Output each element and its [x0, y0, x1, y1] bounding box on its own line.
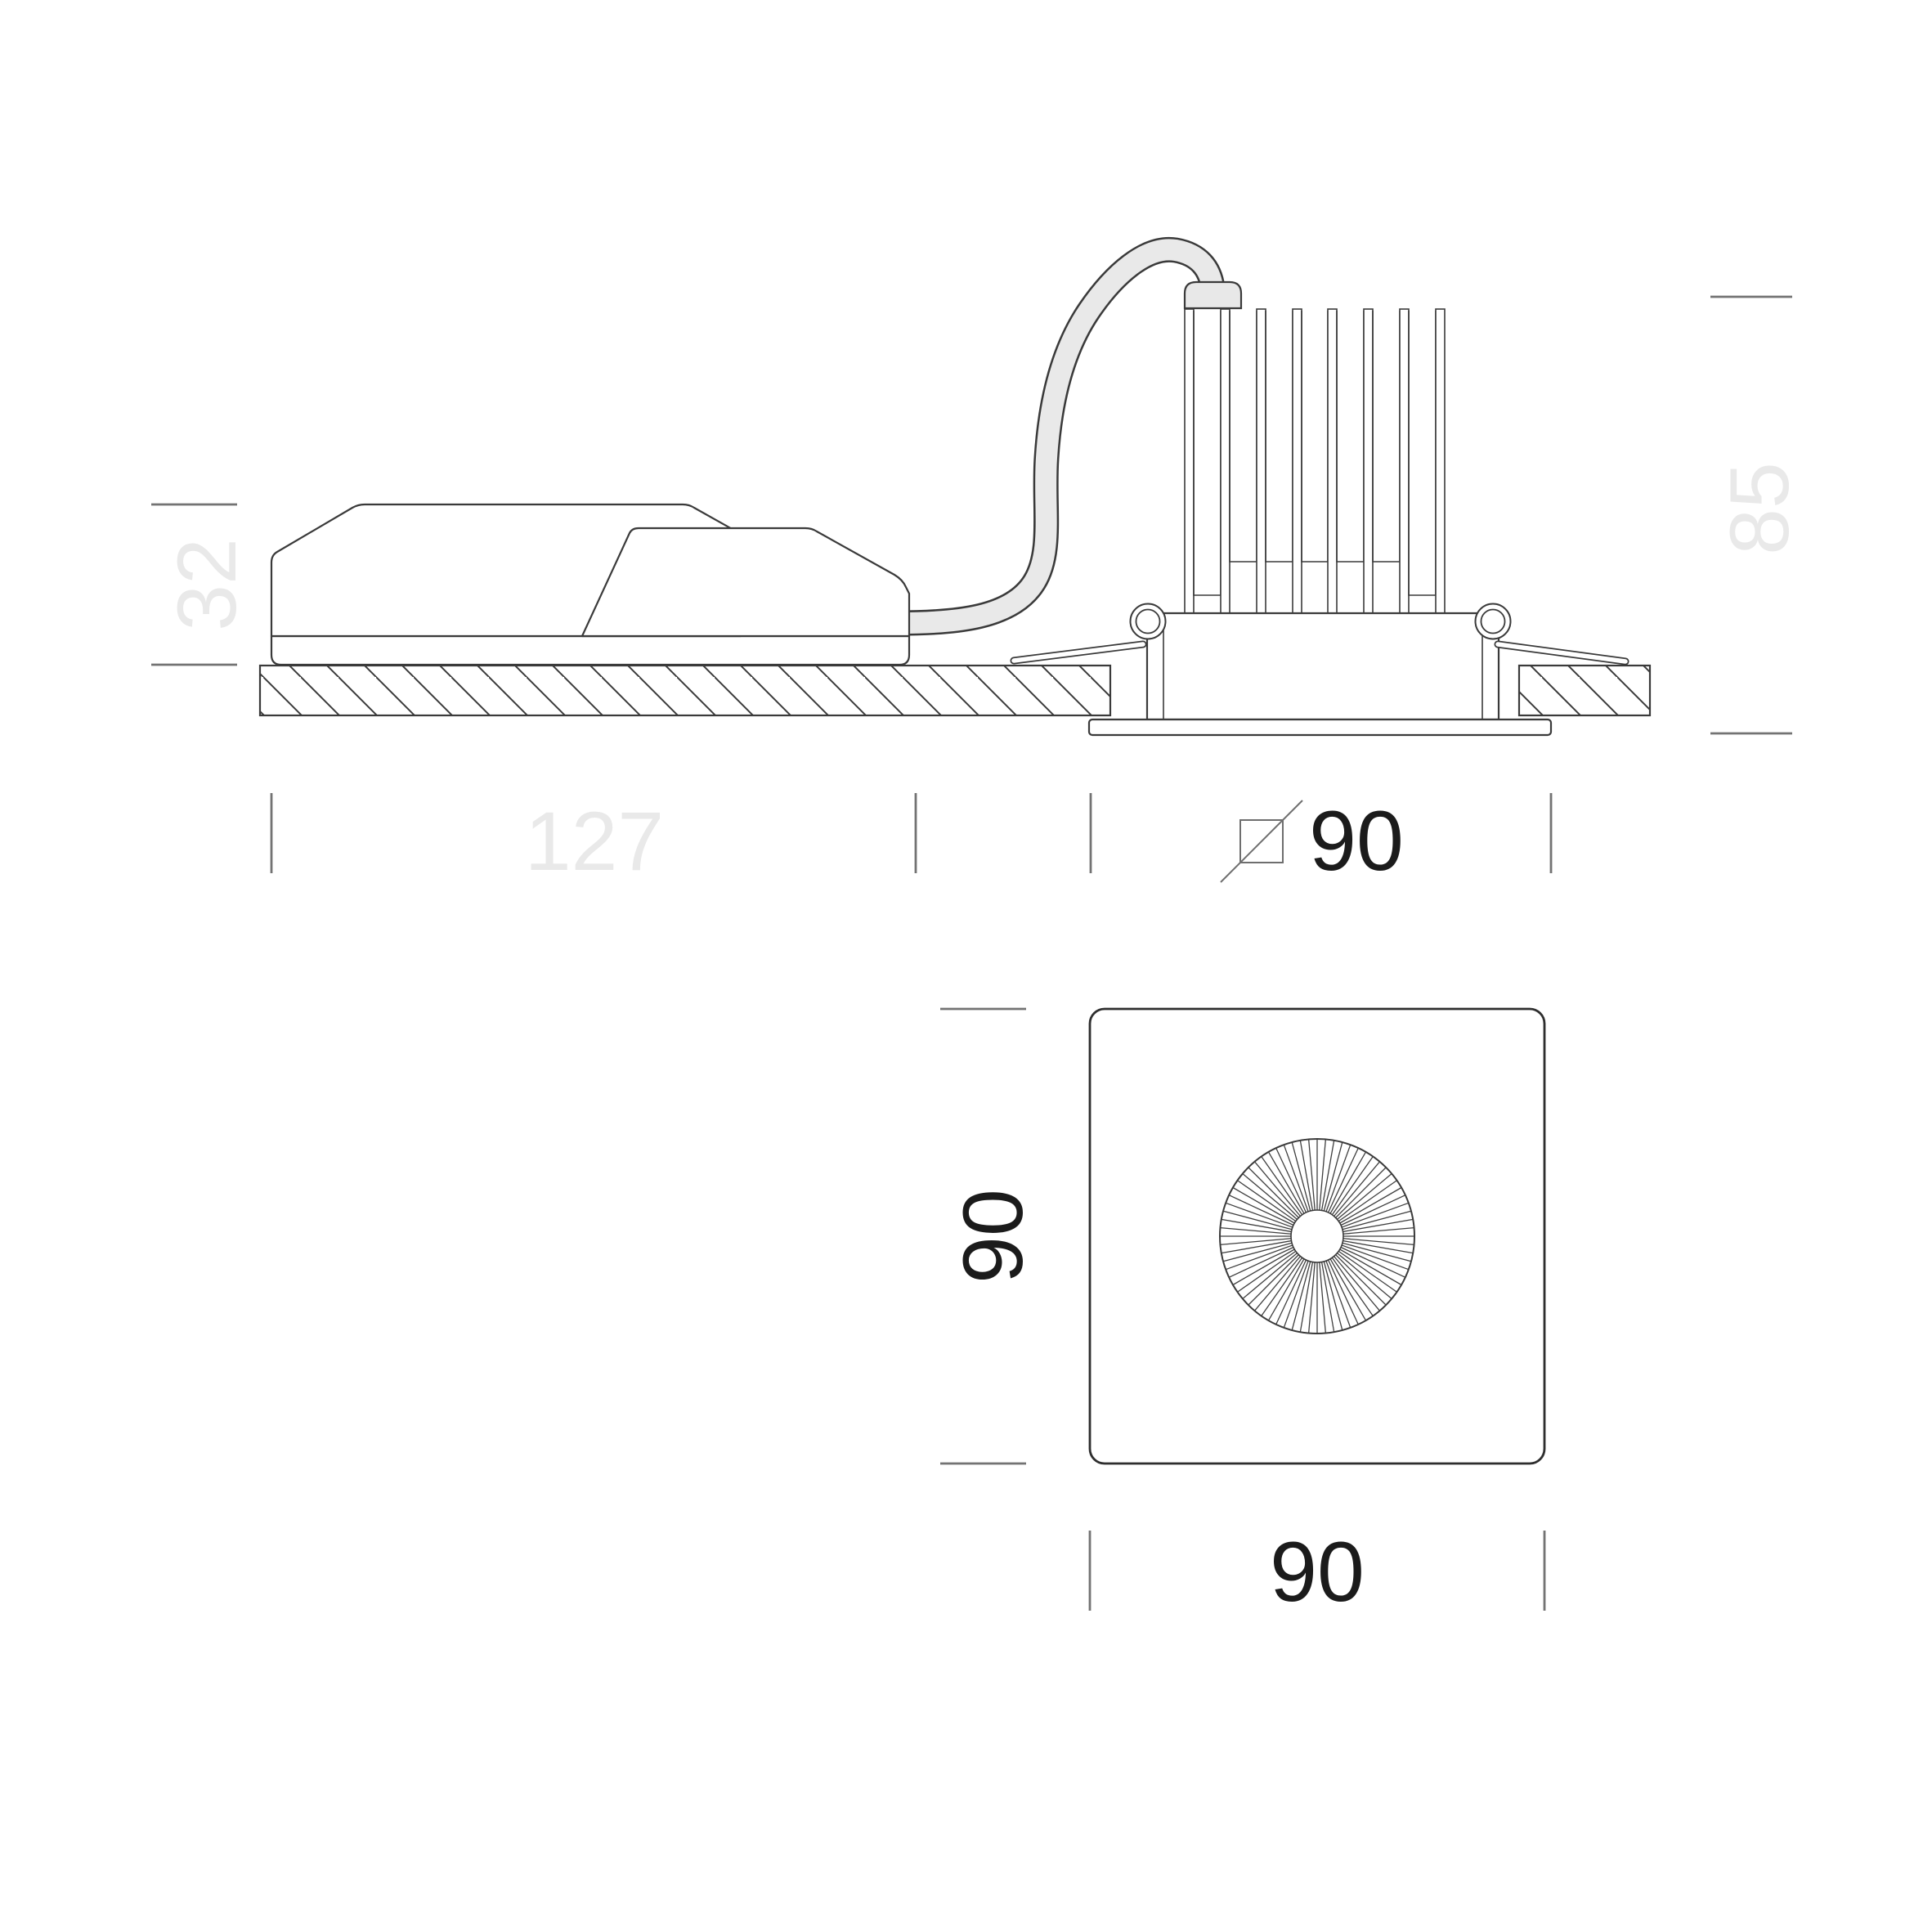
driver-base-plate — [271, 636, 909, 665]
dimension-front-width: 90 — [1090, 1525, 1544, 1620]
heatsink-fin — [1293, 309, 1302, 613]
heatsink-fin — [1221, 309, 1230, 613]
ceiling-hatch-left — [260, 666, 1110, 715]
heatsink-fin — [1364, 309, 1373, 613]
ceiling-hatch-right — [1519, 666, 1650, 715]
heatsink-fin-gap — [1373, 311, 1400, 562]
trim-flange — [1089, 719, 1551, 735]
power-cable — [898, 249, 1213, 623]
heatsink-fin-gap — [1230, 311, 1257, 562]
dimension-driver-height: 32 — [151, 504, 253, 665]
dimension-luminaire-height: 85 — [1710, 297, 1806, 733]
dim-front-width-label: 90 — [1270, 1525, 1365, 1620]
heatsink-fin-gap — [1194, 311, 1221, 595]
cable-end-cap — [1185, 282, 1241, 308]
dim-front-height-label: 90 — [946, 1189, 1041, 1284]
clip-blade — [1498, 644, 1625, 661]
heatsink-fin — [1436, 309, 1445, 613]
clip-blade — [1014, 644, 1143, 661]
dim-85-label: 85 — [1713, 462, 1806, 554]
heatsink-fin-gap — [1409, 311, 1436, 595]
led-source-hole — [1291, 1210, 1343, 1262]
luminaire-front-view — [1090, 1009, 1544, 1464]
clip-ring-inner — [1136, 610, 1160, 634]
heatsink-fin — [1185, 309, 1194, 613]
technical-drawing-canvas: 32 127 85 90 90 — [0, 0, 1932, 1932]
technical-drawing-page: 32 127 85 90 90 — [0, 0, 1932, 1932]
luminaire-body — [1147, 613, 1499, 719]
heatsink-fins — [1185, 309, 1445, 613]
heatsink-fin — [1328, 309, 1337, 613]
driver-front-wedge — [582, 528, 909, 636]
heatsink-fin-gap — [1266, 311, 1293, 562]
dimension-cutout: 90 — [1091, 793, 1551, 889]
dimension-front-height: 90 — [940, 1009, 1041, 1464]
heatsink-fin-gap — [1337, 311, 1364, 562]
heatsink-fin — [1400, 309, 1409, 613]
dim-32-label: 32 — [160, 538, 253, 630]
heatsink-fin — [1257, 309, 1266, 613]
square-cutout-icon — [1221, 800, 1302, 882]
dim-127-label: 127 — [525, 795, 664, 888]
driver-box — [271, 504, 909, 665]
clip-ring-inner — [1481, 610, 1505, 634]
heatsink-fin-gap — [1302, 311, 1328, 562]
cable-fill — [898, 249, 1213, 623]
dim-cutout-label: 90 — [1309, 794, 1404, 889]
spring-clip-left — [1014, 604, 1166, 661]
dimension-driver-length: 127 — [271, 793, 916, 888]
